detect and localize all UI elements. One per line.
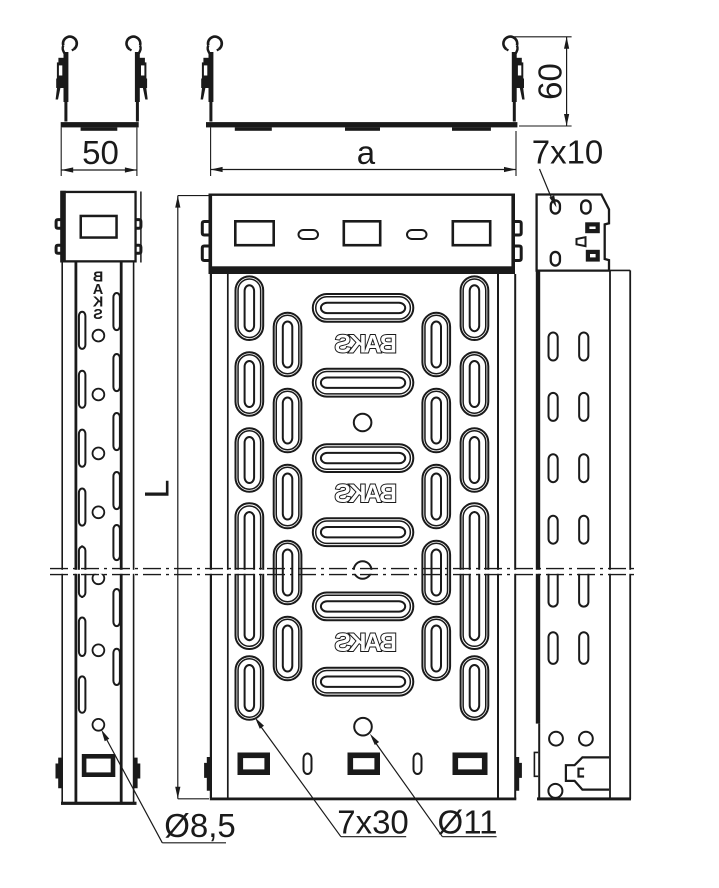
svg-text:a: a	[357, 134, 376, 171]
svg-text:7x30: 7x30	[337, 804, 409, 841]
svg-text:50: 50	[82, 134, 119, 171]
svg-text:BAKS: BAKS	[335, 481, 397, 508]
svg-text:L: L	[139, 480, 177, 499]
svg-text:BAKS: BAKS	[335, 331, 397, 358]
svg-text:60: 60	[532, 63, 569, 100]
svg-text:S: S	[93, 307, 103, 323]
svg-text:Ø8,5: Ø8,5	[164, 807, 236, 844]
svg-text:BAKS: BAKS	[335, 630, 397, 657]
svg-text:Ø11: Ø11	[438, 804, 498, 841]
svg-text:7x10: 7x10	[532, 134, 604, 171]
